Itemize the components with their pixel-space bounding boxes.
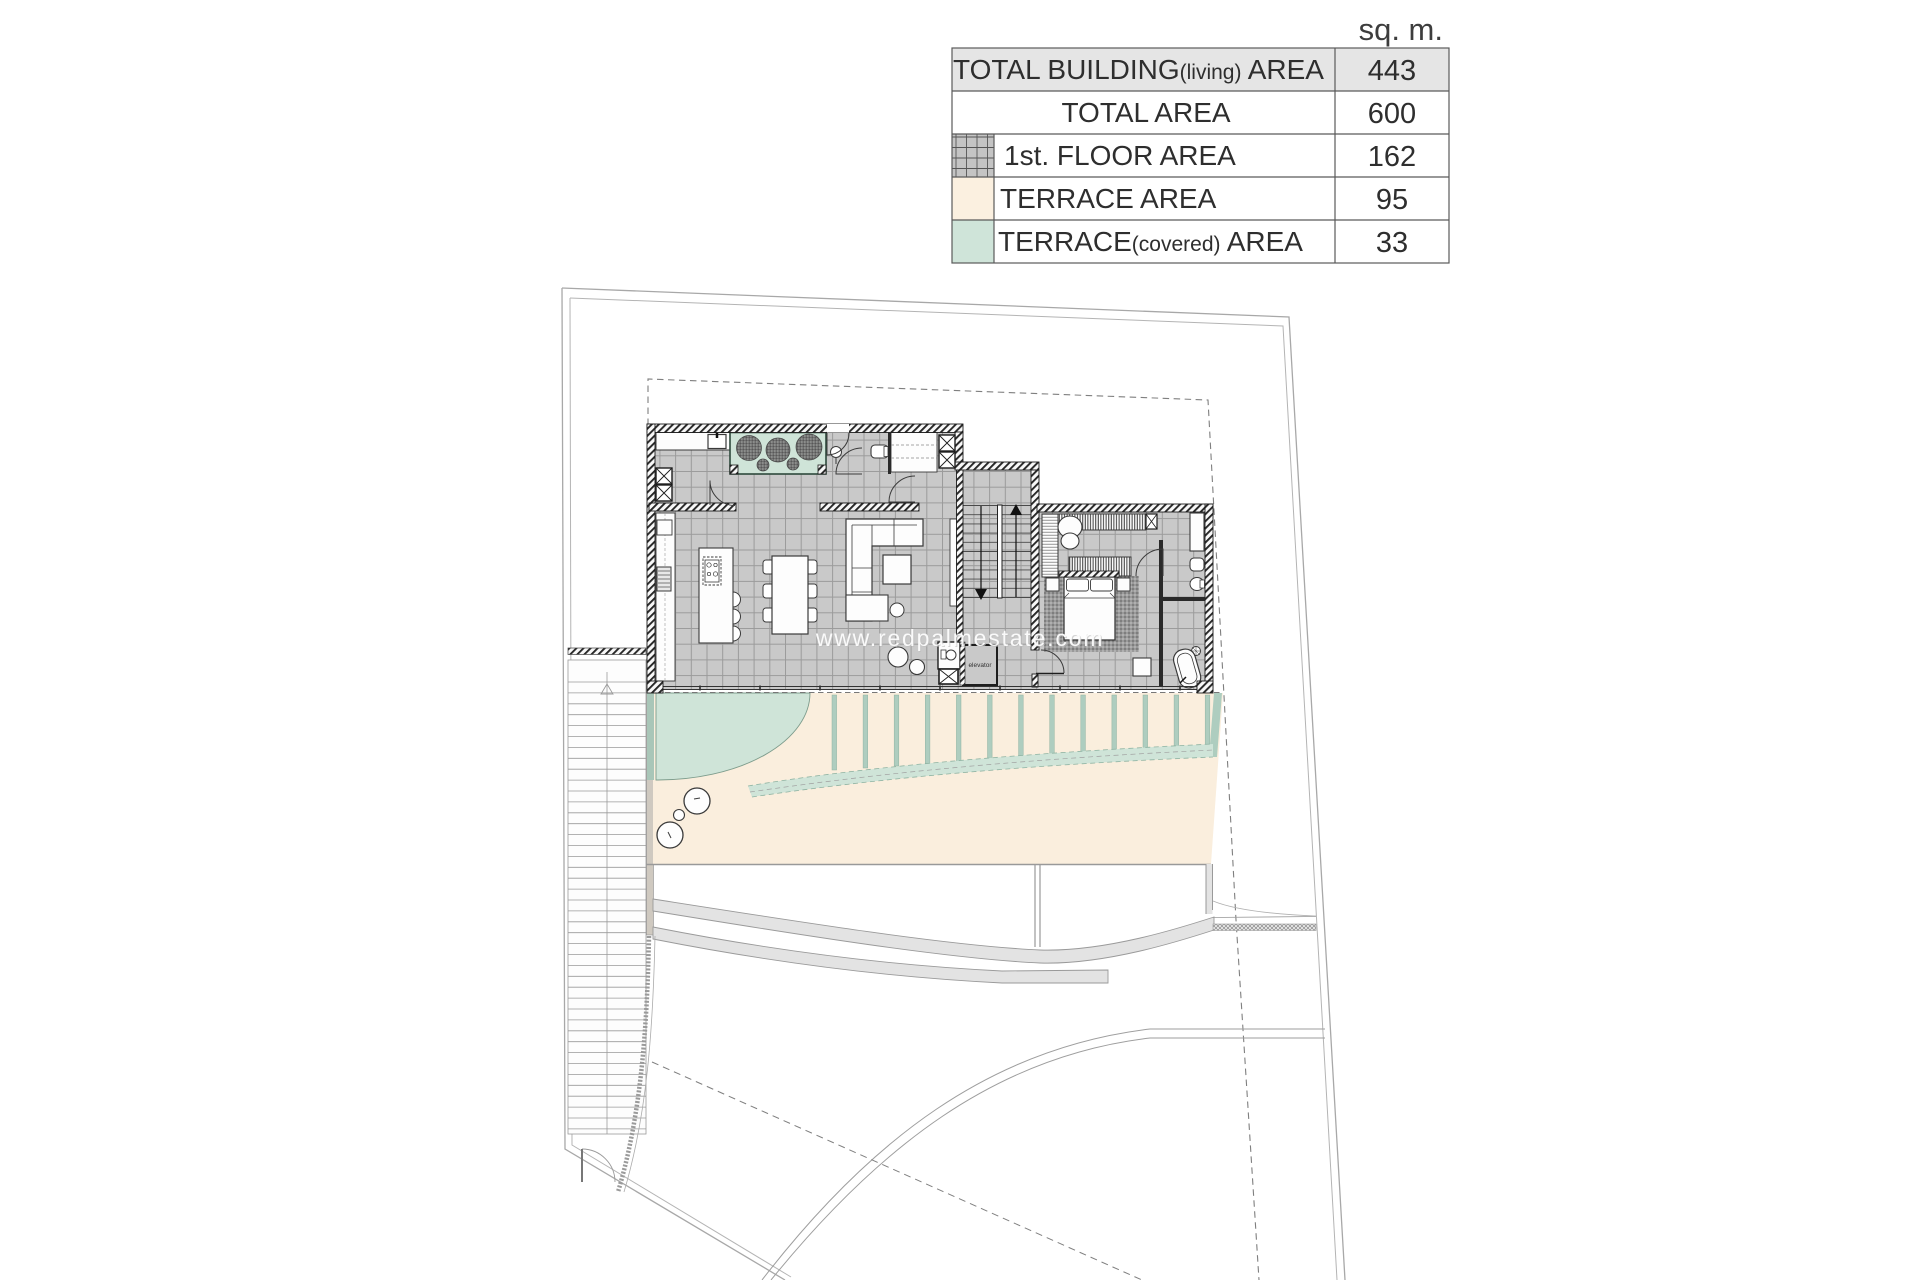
svg-text:TERRACE AREA: TERRACE AREA (1000, 183, 1217, 214)
svg-text:600: 600 (1368, 98, 1416, 130)
svg-text:TOTAL AREA: TOTAL AREA (1061, 97, 1230, 128)
svg-text:443: 443 (1368, 55, 1416, 87)
svg-text:TOTAL BUILDING(living) AREA: TOTAL BUILDING(living) AREA (953, 54, 1324, 85)
svg-text:33: 33 (1376, 227, 1408, 259)
svg-text:162: 162 (1368, 141, 1416, 173)
svg-text:sq. m.: sq. m. (1359, 12, 1443, 47)
svg-text:www.redpalmestate.com: www.redpalmestate.com (815, 625, 1104, 651)
svg-text:95: 95 (1376, 184, 1408, 216)
svg-text:1st. FLOOR AREA: 1st. FLOOR AREA (1004, 140, 1236, 171)
svg-text:elevator: elevator (968, 662, 992, 669)
